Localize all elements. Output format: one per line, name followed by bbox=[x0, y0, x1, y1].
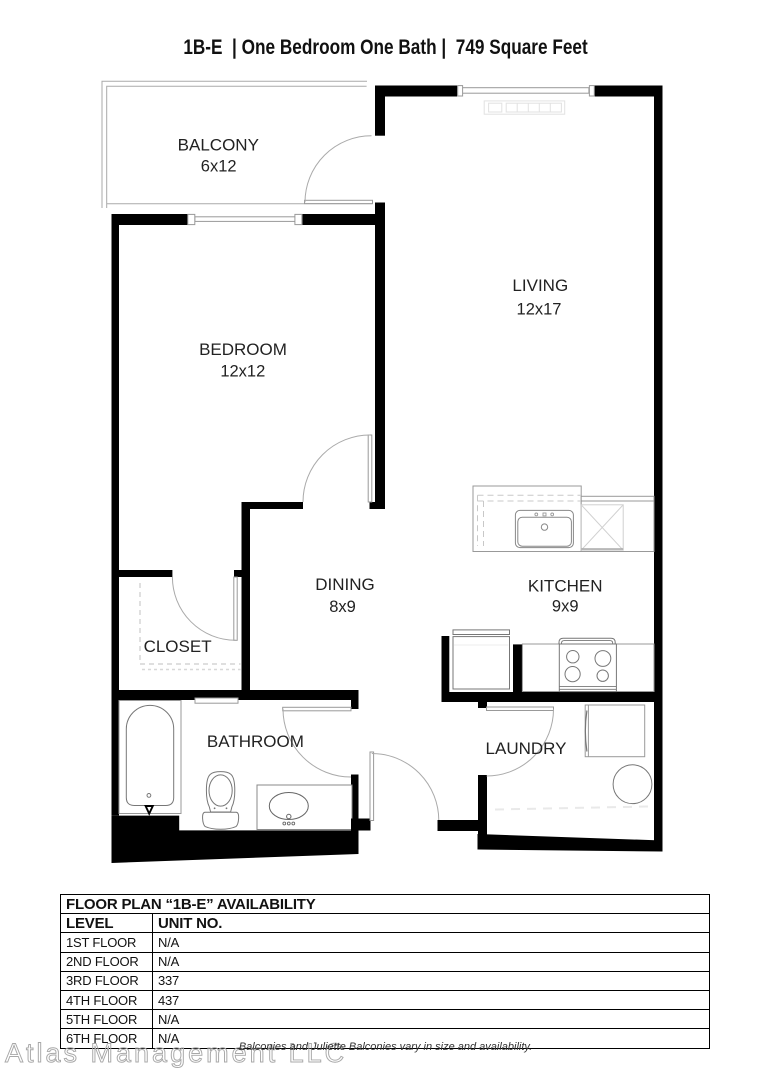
svg-text:KITCHEN: KITCHEN bbox=[528, 577, 603, 596]
svg-text:9x9: 9x9 bbox=[552, 598, 579, 616]
svg-text:BATHROOM: BATHROOM bbox=[207, 732, 304, 751]
svg-text:BEDROOM: BEDROOM bbox=[199, 340, 287, 359]
svg-text:8x9: 8x9 bbox=[329, 598, 356, 616]
svg-text:LIVING: LIVING bbox=[512, 276, 568, 295]
svg-text:DINING: DINING bbox=[315, 575, 375, 594]
svg-text:12x17: 12x17 bbox=[517, 300, 562, 318]
svg-text:CLOSET: CLOSET bbox=[144, 637, 212, 656]
svg-text:6x12: 6x12 bbox=[201, 158, 237, 176]
svg-text:12x12: 12x12 bbox=[220, 362, 265, 380]
svg-text:LAUNDRY: LAUNDRY bbox=[486, 739, 567, 758]
svg-text:BALCONY: BALCONY bbox=[178, 136, 259, 155]
